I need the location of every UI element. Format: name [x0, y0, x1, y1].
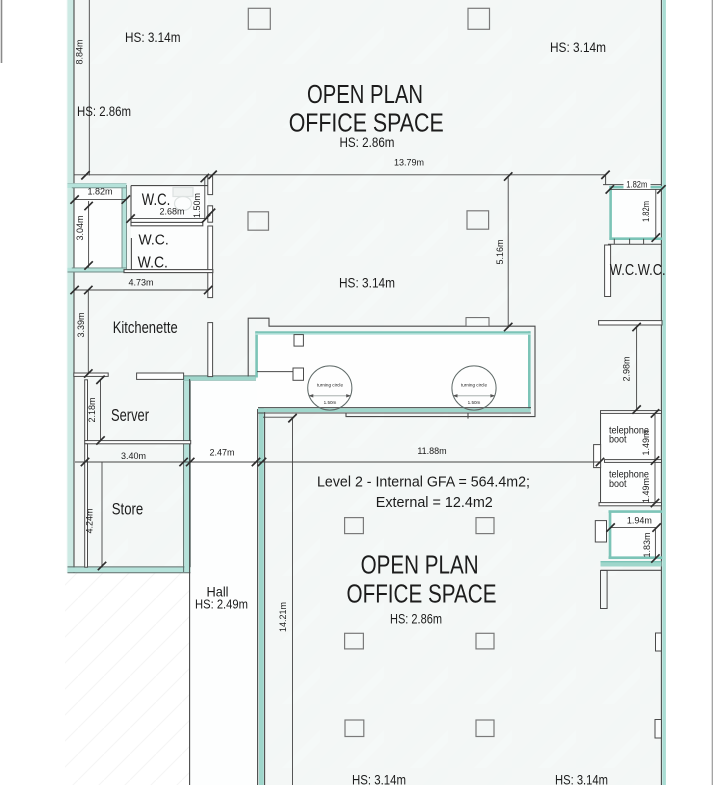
svg-text:boot: boot: [609, 433, 627, 445]
svg-text:3.04m: 3.04m: [75, 215, 85, 240]
svg-text:1.83m: 1.83m: [642, 532, 652, 557]
svg-text:1.50m: 1.50m: [324, 400, 337, 405]
svg-text:HS: 3.14m: HS: 3.14m: [339, 274, 395, 290]
svg-text:Server: Server: [111, 405, 149, 425]
svg-text:Kitchenette: Kitchenette: [113, 318, 178, 337]
svg-text:OFFICE SPACE: OFFICE SPACE: [347, 579, 497, 609]
svg-text:3.39m: 3.39m: [76, 312, 86, 337]
svg-text:1.50m: 1.50m: [192, 193, 202, 218]
svg-text:13.79m: 13.79m: [394, 158, 424, 168]
svg-text:1.82m: 1.82m: [87, 187, 112, 197]
svg-text:14.21m: 14.21m: [278, 602, 288, 632]
svg-text:4.24m: 4.24m: [85, 508, 95, 533]
svg-text:HS: 2.86m: HS: 2.86m: [77, 103, 131, 119]
svg-text:1.49m: 1.49m: [641, 478, 651, 503]
svg-text:1.94m: 1.94m: [627, 516, 652, 526]
svg-text:2.47m: 2.47m: [209, 447, 234, 457]
svg-text:turning circle: turning circle: [317, 382, 343, 387]
svg-text:W.C.: W.C.: [142, 191, 171, 209]
svg-text:3.40m: 3.40m: [121, 451, 146, 461]
svg-text:W.C.: W.C.: [138, 254, 168, 271]
svg-text:8.84m: 8.84m: [75, 39, 85, 64]
svg-text:1.82m: 1.82m: [641, 201, 651, 222]
svg-text:11.88m: 11.88m: [417, 446, 446, 456]
svg-text:W.C.: W.C.: [138, 232, 168, 249]
svg-text:4.73m: 4.73m: [128, 277, 153, 287]
svg-text:HS: 3.14m: HS: 3.14m: [550, 39, 606, 55]
svg-text:External = 12.4m2: External = 12.4m2: [376, 495, 493, 511]
svg-text:HS: 3.14m: HS: 3.14m: [555, 771, 608, 785]
svg-text:W.C.W.C.: W.C.W.C.: [610, 262, 666, 279]
svg-text:HS: 2.86m: HS: 2.86m: [340, 134, 395, 150]
svg-text:HS: 3.14m: HS: 3.14m: [352, 771, 406, 785]
svg-text:HS: 2.86m: HS: 2.86m: [390, 610, 442, 626]
svg-text:OPEN PLAN: OPEN PLAN: [361, 549, 479, 579]
svg-text:Store: Store: [112, 499, 144, 518]
svg-text:1.82m: 1.82m: [626, 180, 647, 190]
svg-text:5.16m: 5.16m: [495, 239, 505, 264]
svg-text:HS: 3.14m: HS: 3.14m: [125, 29, 181, 45]
svg-text:Level 2 - Internal GFA = 564.4: Level 2 - Internal GFA = 564.4m2;: [317, 475, 530, 491]
svg-text:2.18m: 2.18m: [87, 397, 97, 422]
svg-text:OPEN PLAN: OPEN PLAN: [307, 79, 423, 109]
svg-text:turning circle: turning circle: [461, 382, 487, 387]
svg-text:HS: 2.49m: HS: 2.49m: [195, 598, 248, 612]
svg-text:boot: boot: [609, 478, 627, 490]
svg-text:2.98m: 2.98m: [621, 356, 631, 381]
svg-text:1.50m: 1.50m: [468, 400, 481, 405]
